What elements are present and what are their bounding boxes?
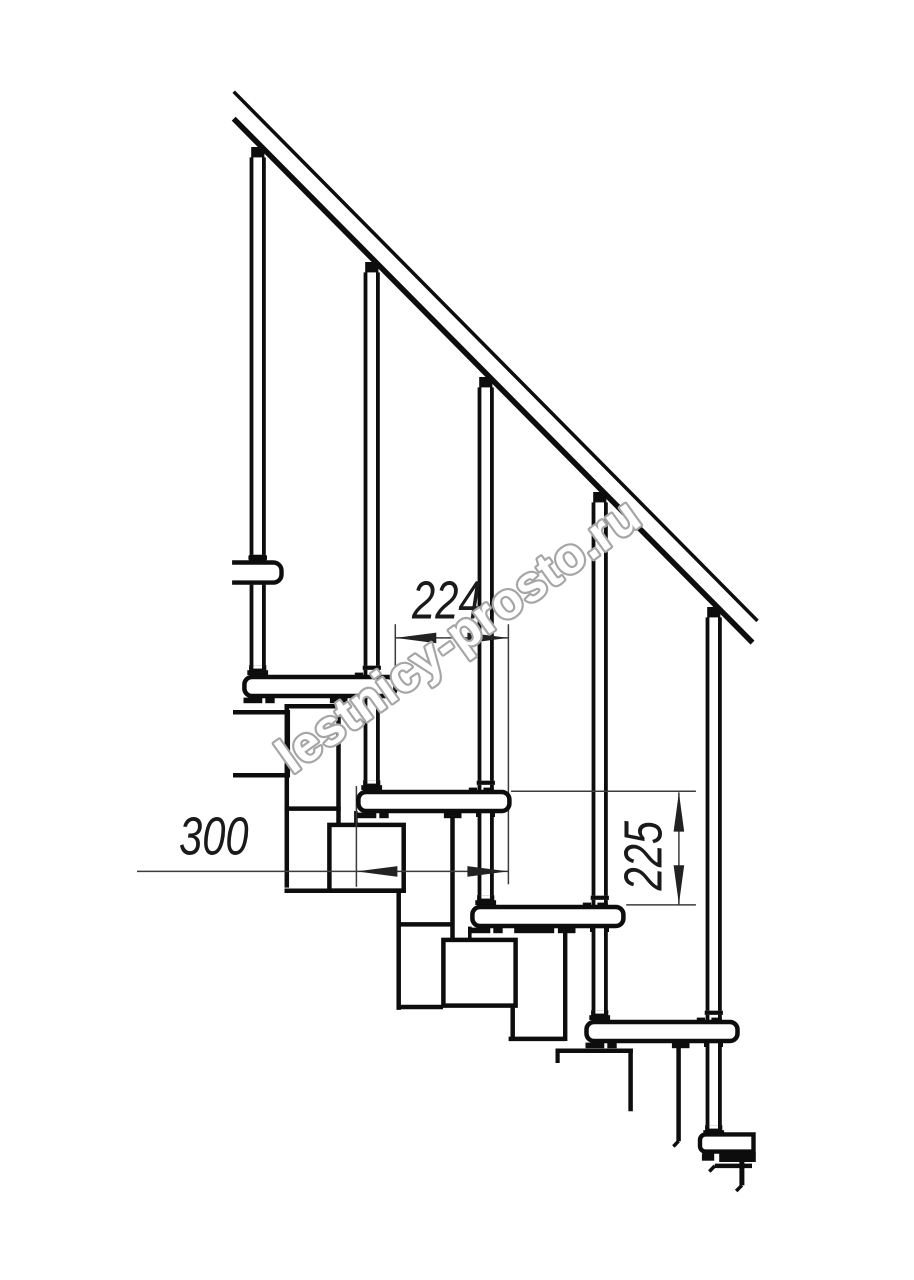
svg-text:300: 300 xyxy=(179,808,249,867)
svg-text:225: 225 xyxy=(615,821,674,892)
